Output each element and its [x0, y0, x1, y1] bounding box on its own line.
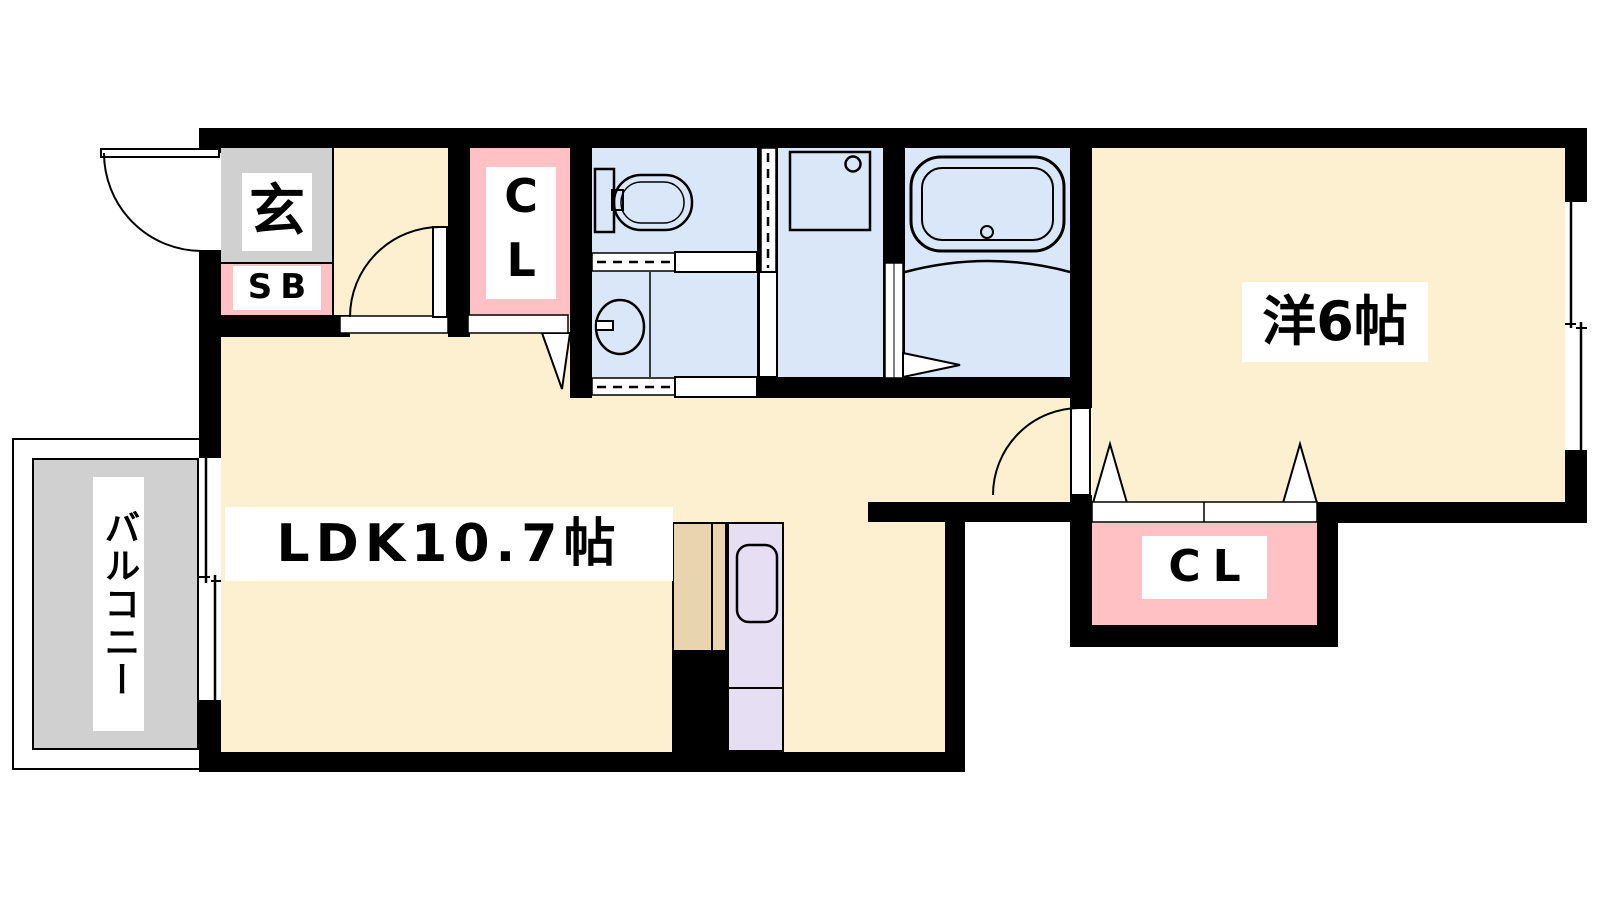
washroom [778, 148, 883, 377]
wall-toilet-washroom [757, 128, 778, 377]
wall-western-room-south [1317, 502, 1587, 523]
balcony-window-opening [199, 458, 221, 700]
entrance-label: 玄 [242, 173, 312, 251]
wall-south-ldk [199, 752, 965, 772]
ldk-label: LDK10.7帖 [225, 507, 673, 581]
balcony-label: バルコニー [93, 477, 144, 731]
wall-kitchen-partition [672, 652, 727, 752]
kitchen-counter [672, 522, 727, 652]
wall-toilet-west [570, 128, 592, 398]
front-door-opening [199, 153, 221, 250]
bathroom [905, 148, 1070, 378]
exterior-void [1092, 647, 1338, 772]
wall-bath-washroom [883, 128, 905, 398]
western-room-door-opening [1070, 408, 1092, 495]
wall-closet-upper-left [448, 128, 470, 337]
toilet-room [592, 148, 757, 377]
wall-closet-lower-right [1317, 502, 1338, 647]
shoe-box-label: SB [233, 266, 321, 310]
kitchen-sink-unit [727, 522, 784, 752]
wall-plumbing-south [757, 377, 1092, 398]
wall-western-room-west [1070, 128, 1092, 408]
floor-plan: 玄 SB CL LDK10.7帖 洋6帖 CL バルコニー [0, 0, 1600, 900]
east-window-opening [1565, 202, 1587, 450]
closet-upper-label: CL [486, 167, 556, 299]
wall-corridor-south [868, 502, 1090, 522]
exterior-void [1338, 523, 1587, 772]
closet-lower-label: CL [1142, 536, 1267, 599]
wall-ldk-east [945, 522, 965, 772]
wall-closet-lower-bottom [1070, 625, 1338, 647]
wall-under-entrance [199, 315, 350, 337]
western-room-label: 洋6帖 [1242, 282, 1428, 362]
